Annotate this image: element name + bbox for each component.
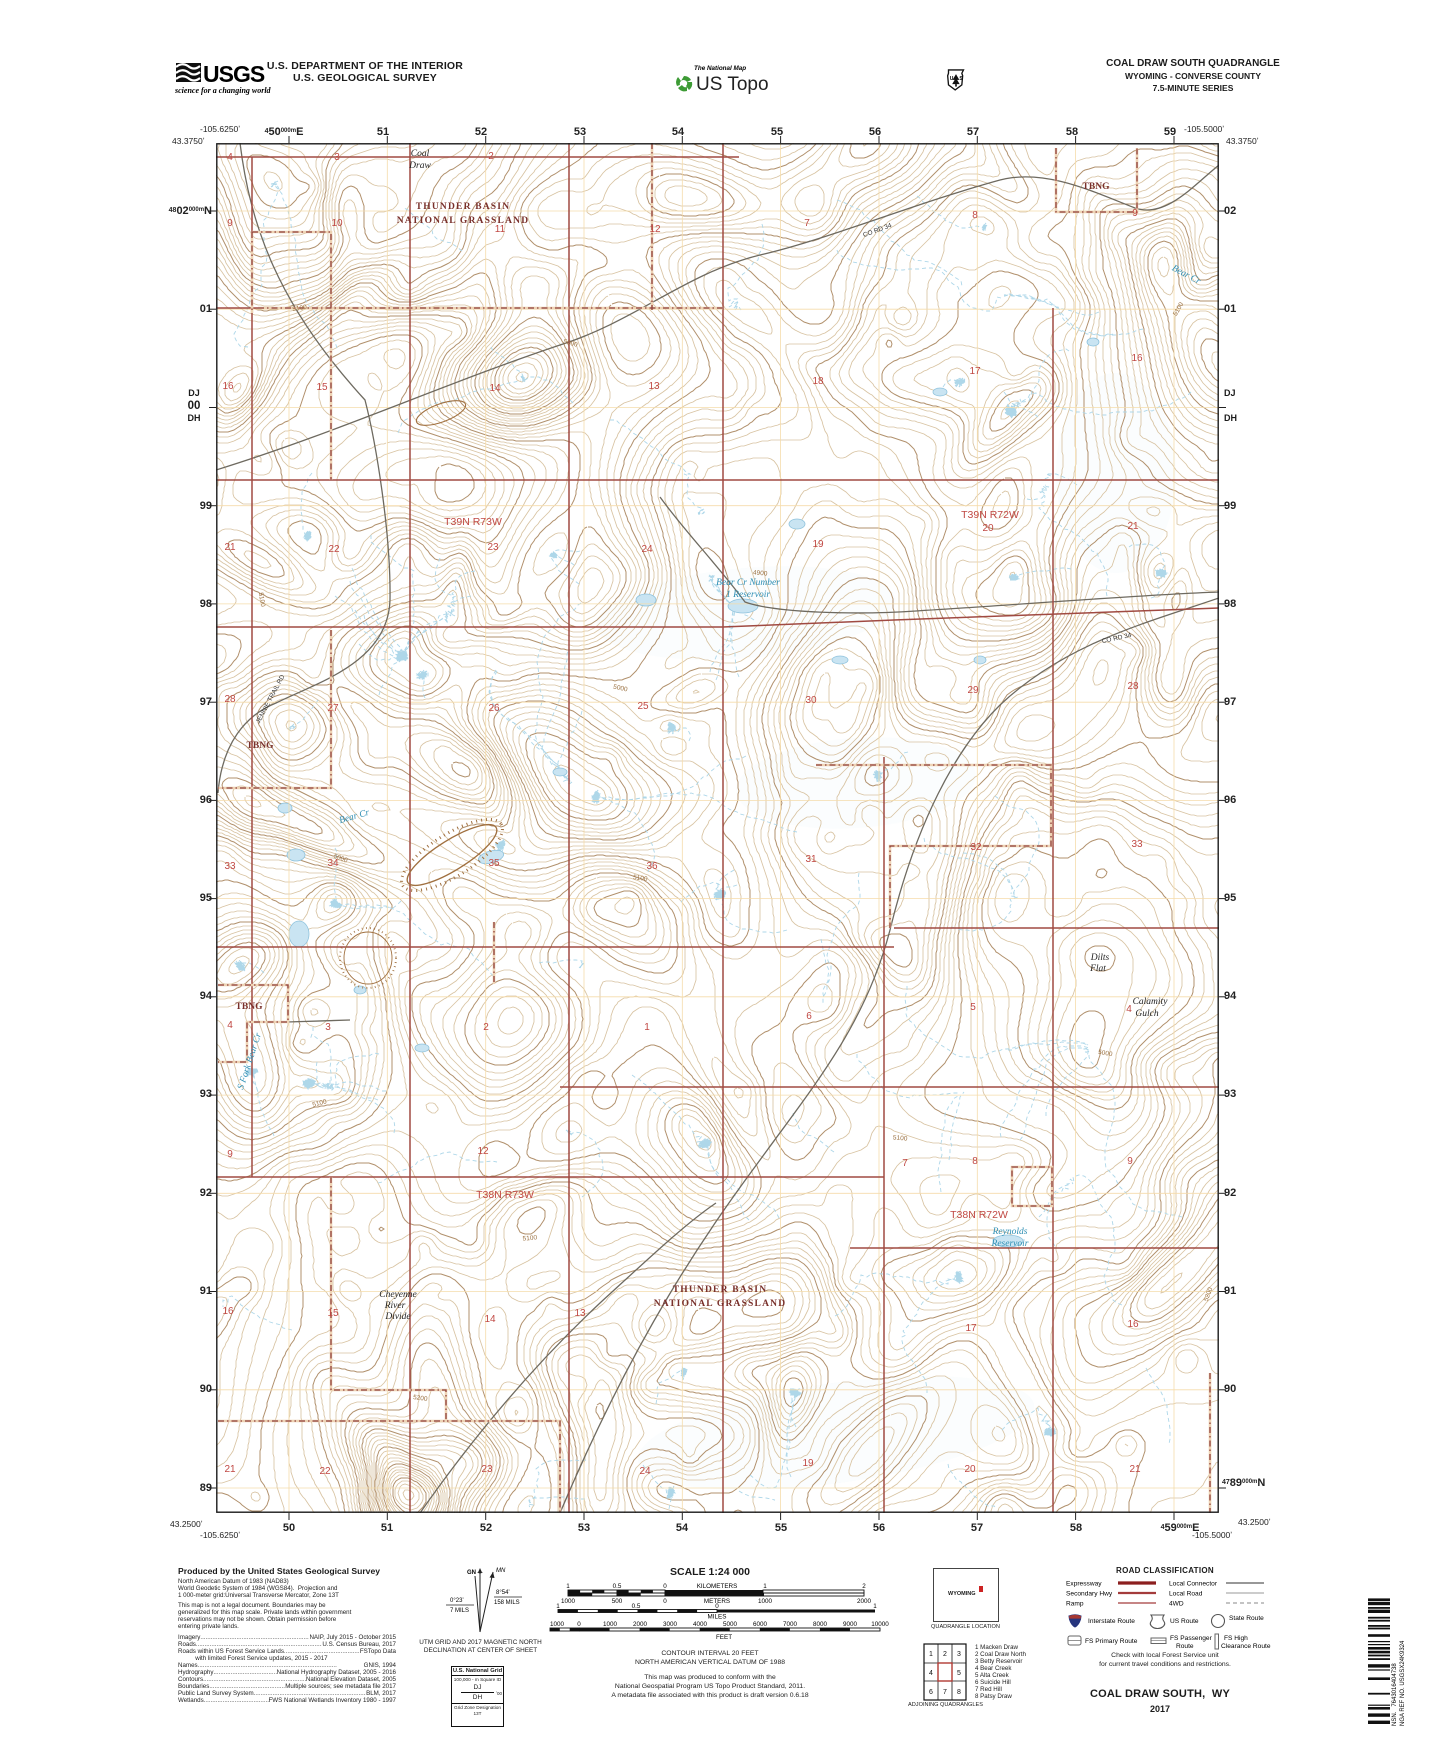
svg-text:science for a changing world: science for a changing world [174, 86, 272, 95]
svg-text:Expressway: Expressway [1066, 1581, 1102, 1588]
svg-text:1000: 1000 [561, 1598, 576, 1605]
svg-text:6000: 6000 [753, 1621, 768, 1628]
svg-text:KILOMETERS: KILOMETERS [697, 1583, 738, 1590]
svg-text:MILES: MILES [708, 1614, 727, 1621]
svg-text:GN: GN [467, 1570, 476, 1576]
svg-text:2000: 2000 [857, 1598, 872, 1605]
svg-text:2000: 2000 [633, 1621, 648, 1628]
svg-text:2: 2 [943, 1651, 947, 1658]
svg-text:4000: 4000 [693, 1621, 708, 1628]
svg-text:1000: 1000 [550, 1621, 565, 1628]
svg-text:1: 1 [566, 1583, 570, 1590]
svg-text:1: 1 [873, 1603, 877, 1610]
svg-text:NSN. 7643016404738: NSN. 7643016404738 [1392, 1663, 1398, 1726]
svg-text:8°54ʼ: 8°54ʼ [496, 1590, 510, 1596]
svg-text:0: 0 [663, 1598, 667, 1605]
svg-text:8: 8 [957, 1689, 961, 1696]
svg-text:NGA REF NO. USGSX24K9324: NGA REF NO. USGSX24K9324 [1400, 1640, 1406, 1726]
svg-text:500: 500 [612, 1598, 623, 1605]
svg-text:FS Passenger: FS Passenger [1170, 1635, 1213, 1642]
svg-text:Route: Route [1176, 1643, 1194, 1650]
svg-text:0.5: 0.5 [613, 1583, 622, 1590]
svg-text:8000: 8000 [813, 1621, 828, 1628]
svg-text:7000: 7000 [783, 1621, 798, 1628]
svg-text:Interstate Route: Interstate Route [1088, 1618, 1135, 1625]
svg-text:10000: 10000 [871, 1621, 889, 1628]
svg-text:2: 2 [862, 1583, 866, 1590]
svg-text:9000: 9000 [843, 1621, 858, 1628]
svg-text:3: 3 [957, 1651, 961, 1658]
svg-text:FEET: FEET [716, 1634, 732, 1641]
svg-text:State Route: State Route [1229, 1615, 1264, 1622]
svg-text:Local Connector: Local Connector [1169, 1581, 1218, 1588]
svg-text:U: U [950, 76, 954, 82]
svg-text:4WD: 4WD [1169, 1601, 1184, 1608]
svg-text:1: 1 [763, 1583, 767, 1590]
svg-text:FS High: FS High [1224, 1635, 1248, 1642]
svg-text:Local Road: Local Road [1169, 1591, 1203, 1598]
svg-text:7 MILS: 7 MILS [450, 1608, 469, 1614]
svg-text:1000: 1000 [603, 1621, 618, 1628]
svg-text:Secondary Hwy: Secondary Hwy [1066, 1591, 1113, 1598]
svg-text:1000: 1000 [758, 1598, 773, 1605]
svg-text:MN: MN [496, 1568, 506, 1574]
svg-text:5000: 5000 [723, 1621, 738, 1628]
svg-text:Ramp: Ramp [1066, 1601, 1084, 1608]
svg-text:3000: 3000 [663, 1621, 678, 1628]
svg-text:FS Primary Route: FS Primary Route [1085, 1638, 1138, 1645]
svg-text:0: 0 [577, 1621, 581, 1628]
svg-text:5: 5 [957, 1670, 961, 1677]
svg-text:6: 6 [929, 1689, 933, 1696]
svg-text:0: 0 [663, 1583, 667, 1590]
svg-text:158 MILS: 158 MILS [494, 1600, 520, 1606]
svg-text:4: 4 [929, 1670, 933, 1677]
svg-text:Clearance Route: Clearance Route [1221, 1643, 1271, 1650]
svg-text:US Route: US Route [1170, 1618, 1199, 1625]
svg-text:7: 7 [943, 1689, 947, 1696]
svg-text:1: 1 [929, 1651, 933, 1658]
svg-text:0°23ʼ: 0°23ʼ [450, 1598, 464, 1604]
svg-text:The National Map: The National Map [694, 65, 746, 72]
svg-text:US Topo: US Topo [696, 74, 769, 95]
